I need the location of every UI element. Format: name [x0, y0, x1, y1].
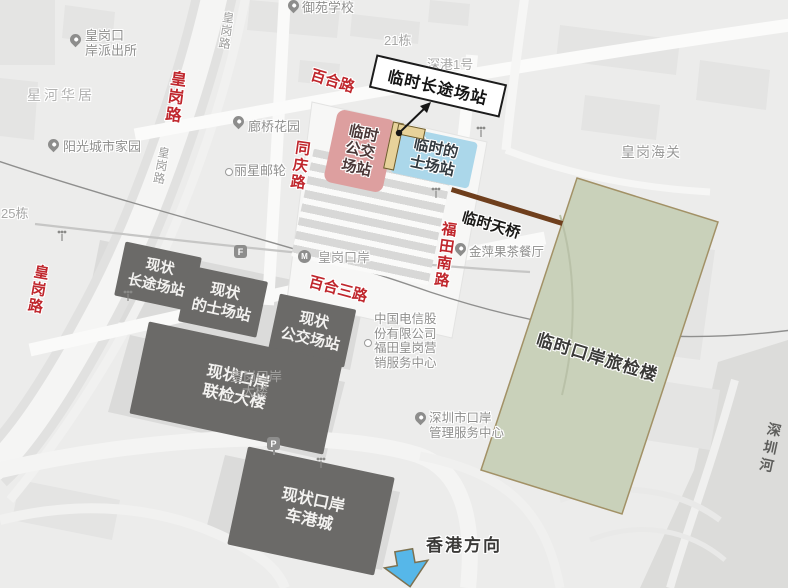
poi-huanggang-port-building-faint: 皇岗口岸 大楼: [230, 369, 282, 399]
poi-block-25: 25栋: [1, 206, 28, 221]
poi-huanggang-checkpoint-metro: 皇岗口岸: [318, 250, 370, 265]
parking-icon-stem: [273, 450, 275, 455]
poi-police-station: 皇岗口 岸派出所: [85, 28, 137, 58]
telecom-marker: [364, 339, 372, 347]
poi-lixing-cruise: 丽星邮轮: [234, 163, 286, 178]
metro-station-icon: M: [298, 250, 311, 263]
lixing-cruise-marker: [225, 168, 233, 176]
parking-icon: P: [267, 437, 280, 450]
poi-sunshine-city-home: 阳光城市家园: [63, 139, 141, 154]
poi-huanggang-customs: 皇岗海关: [621, 145, 681, 160]
poi-langqiao-garden: 廊桥花园: [248, 119, 300, 134]
poi-china-telecom: 中国电信股 份有限公司 福田皇岗营 销服务中心: [374, 312, 437, 370]
poi-xinghe-huaju: 星河华居: [27, 88, 95, 103]
poi-yuyuan-school: 御苑学校: [302, 0, 354, 15]
hongkong-direction-label: 香港方向: [426, 538, 502, 553]
poi-block-21: 21栋: [384, 33, 411, 48]
exit-f-icon: F: [234, 245, 247, 258]
map-canvas[interactable]: 现状 长途场站 现状 的士场站 现状 公交场站 现状口岸 联检大楼 现状口岸 车…: [0, 0, 788, 588]
poi-port-admin-center: 深圳市口岸 管理服务中心: [429, 411, 504, 441]
poi-jinping-restaurant: 金萍果茶餐厅: [469, 245, 544, 260]
